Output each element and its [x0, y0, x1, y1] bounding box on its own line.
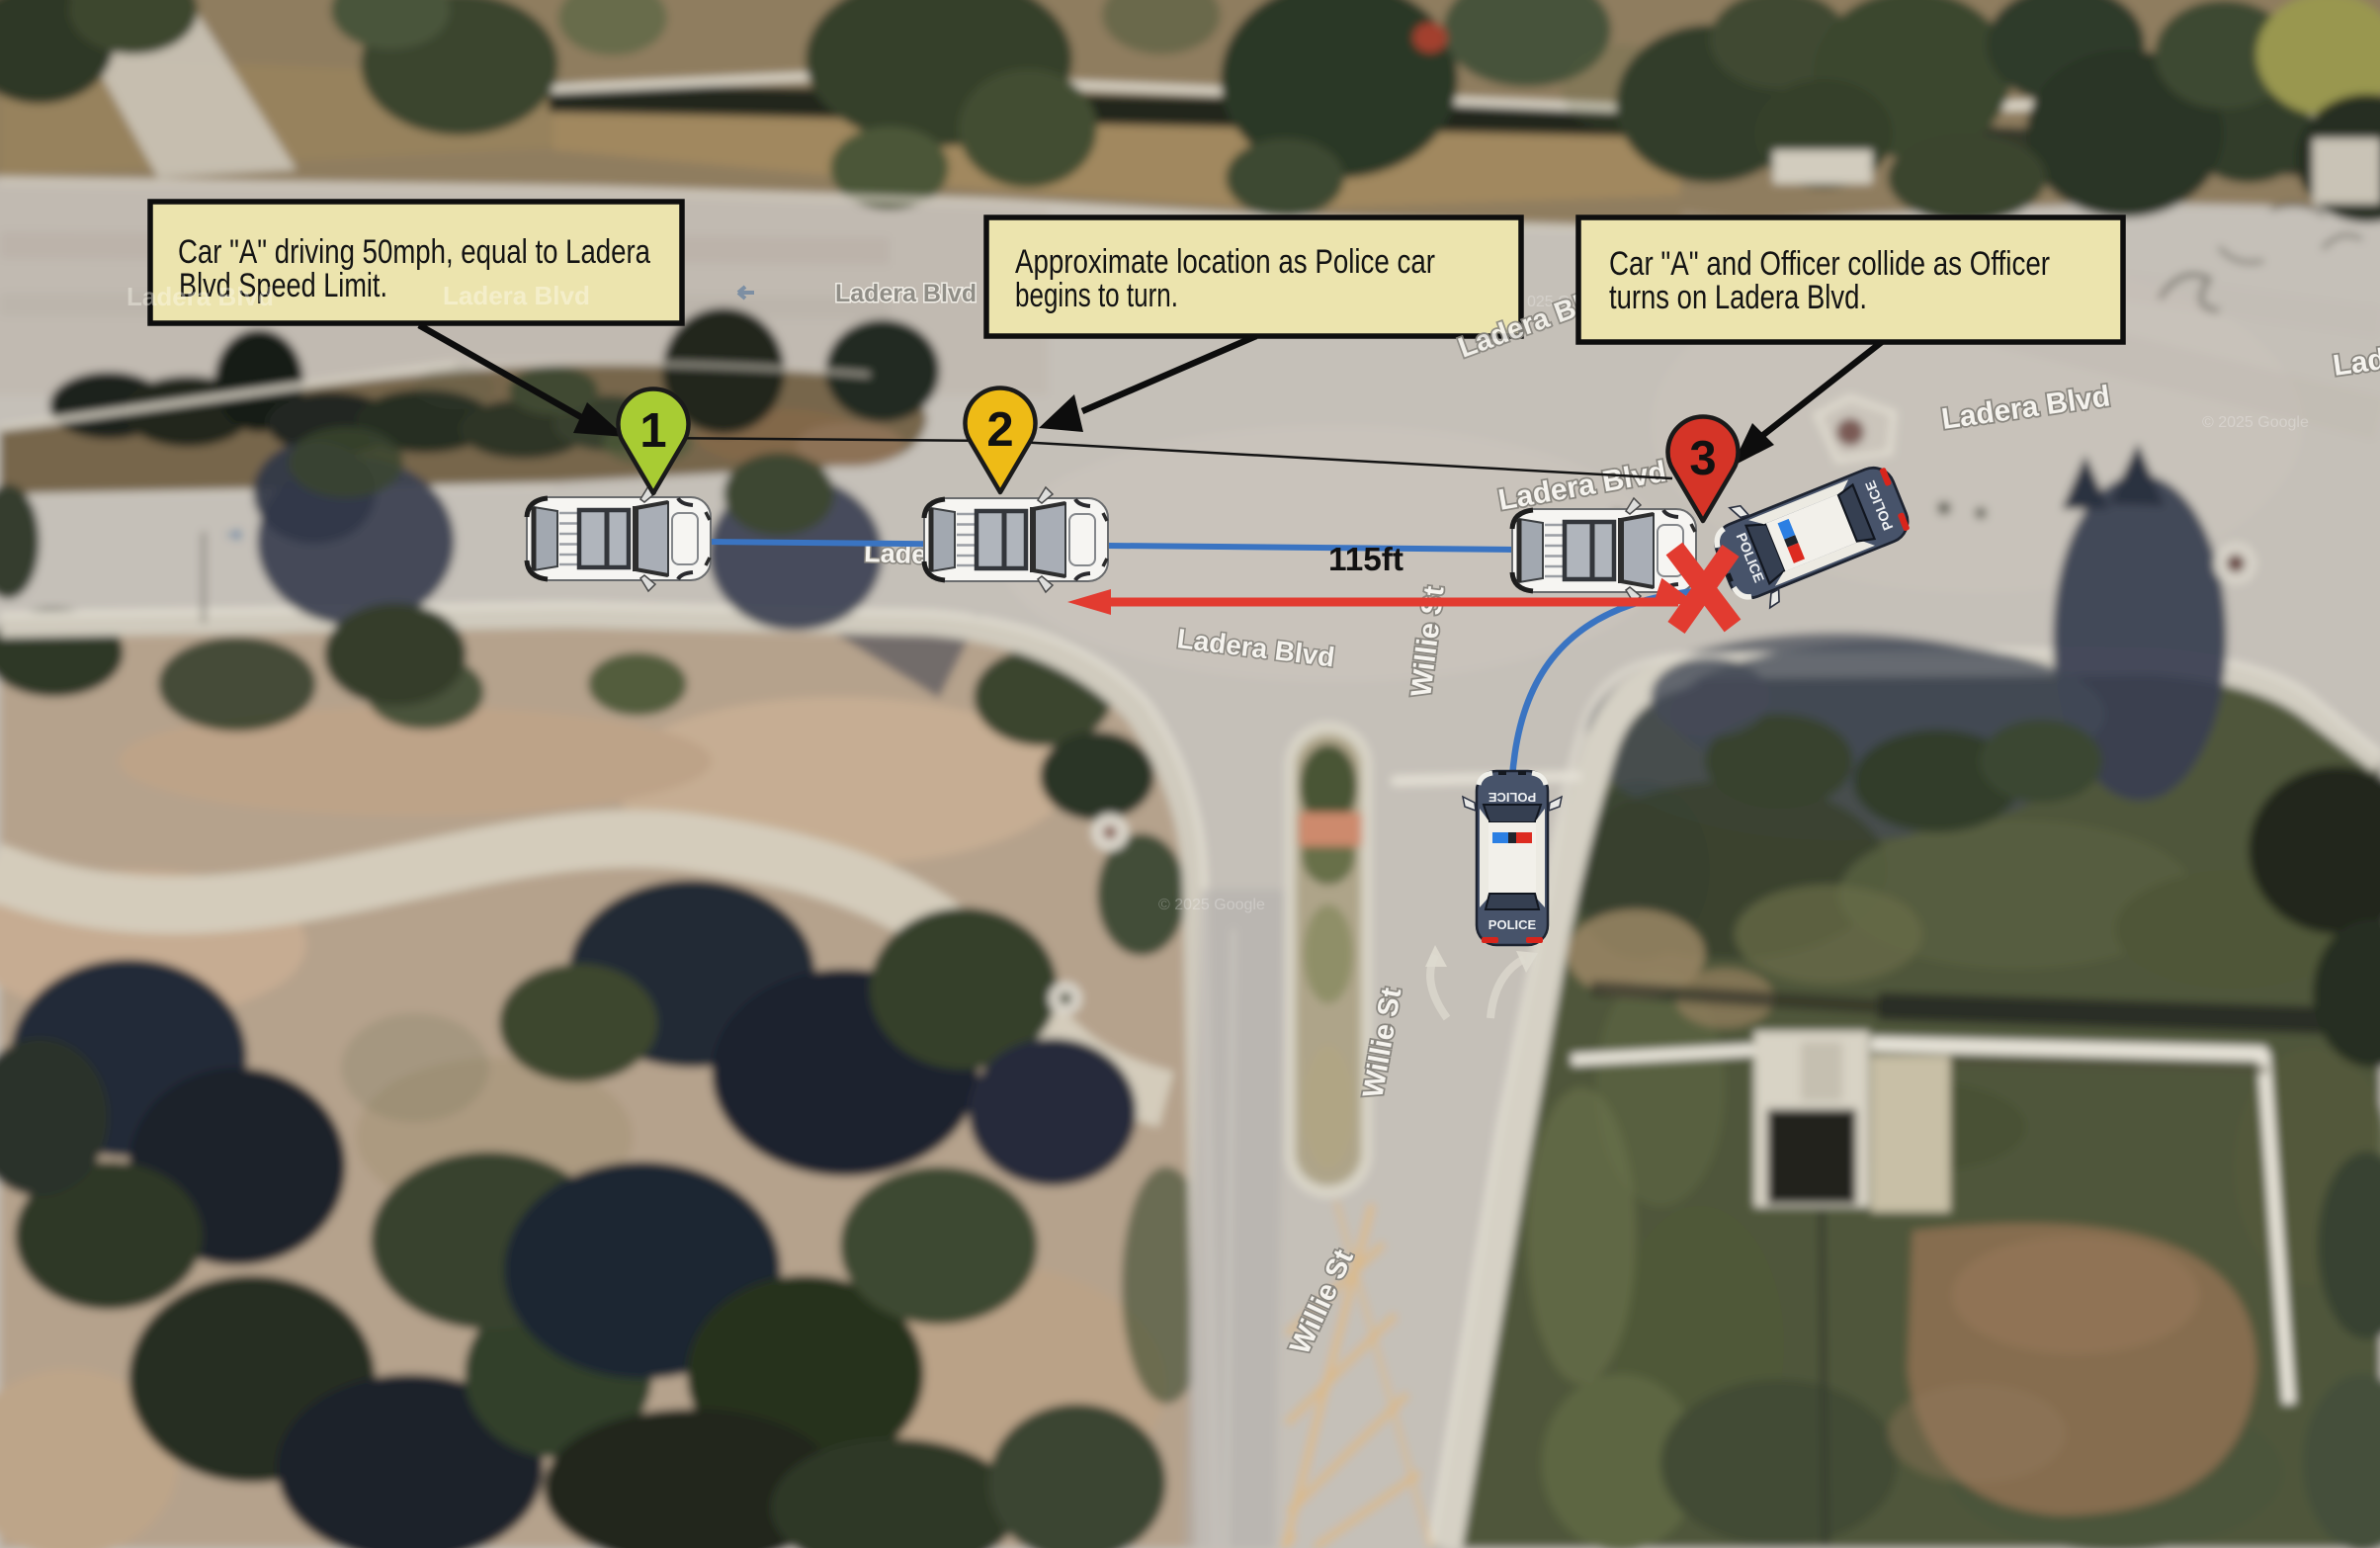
svg-text:turns on Ladera Blvd.: turns on Ladera Blvd.: [1609, 279, 1867, 316]
svg-text:1: 1: [639, 404, 666, 458]
svg-text:Approximate location as Police: Approximate location as Police car: [1015, 243, 1435, 281]
svg-text:Lad: Lad: [2331, 343, 2380, 383]
svg-text:3: 3: [1689, 432, 1716, 485]
svg-text:115ft: 115ft: [1328, 541, 1403, 577]
svg-text:Ladera Blvd: Ladera Blvd: [835, 280, 977, 307]
svg-text:Car "A" driving 50mph, equal t: Car "A" driving 50mph, equal to Ladera: [178, 233, 650, 271]
svg-text:Car "A" and Officer collide as: Car "A" and Officer collide as Officer: [1609, 245, 2050, 283]
svg-text:Ladera Blvd: Ladera Blvd: [443, 281, 590, 310]
svg-text:2: 2: [986, 403, 1013, 457]
svg-text:© 2025 Google: © 2025 Google: [2202, 414, 2309, 431]
svg-text:begins to turn.: begins to turn.: [1015, 277, 1178, 314]
svg-text:© 2025 Google: © 2025 Google: [1158, 897, 1265, 913]
svg-text:Ladera Blvd: Ladera Blvd: [127, 282, 274, 311]
